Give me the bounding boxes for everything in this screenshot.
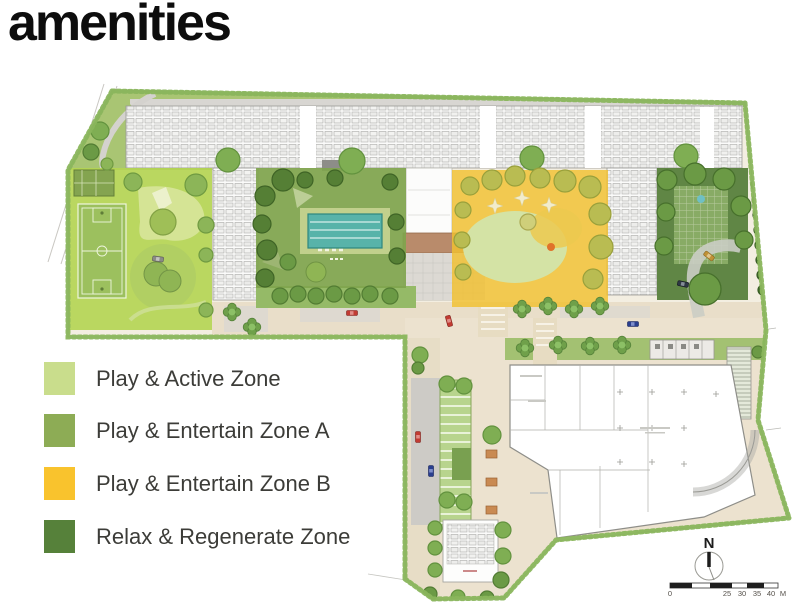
legend-label-entertain-b: Play & Entertain Zone B [96, 471, 331, 497]
legend-item-entertain-a: Play & Entertain Zone A [44, 414, 330, 447]
scale-label-35: 35 [753, 589, 761, 598]
basketball-court [78, 204, 126, 298]
legend-label-entertain-a: Play & Entertain Zone A [96, 418, 330, 444]
swimming-pool [308, 214, 382, 248]
compass-north-label: N [704, 535, 715, 552]
legend-swatch-play-active [44, 362, 75, 395]
scale-label-40: 40 [767, 589, 775, 598]
play-equipment [547, 243, 555, 251]
legend-label-play-active: Play & Active Zone [96, 366, 281, 392]
residential-buildings [126, 106, 742, 300]
amenities-slide: amenities [0, 0, 793, 607]
legend-swatch-entertain-b [44, 467, 75, 500]
legend-label-relax: Relax & Regenerate Zone [96, 524, 350, 550]
scale-label-m: M [780, 589, 786, 598]
legend-item-relax: Relax & Regenerate Zone [44, 520, 350, 553]
scale-label-25: 25 [723, 589, 731, 598]
legend: Play & Active Zone Play & Entertain Zone… [44, 362, 354, 562]
legend-item-entertain-b: Play & Entertain Zone B [44, 467, 331, 500]
legend-item-play-active: Play & Active Zone [44, 362, 281, 395]
scale-label-30: 30 [738, 589, 746, 598]
scale-label-0: 0 [668, 589, 672, 598]
pond [697, 195, 705, 203]
scale-bar: 0 25 30 35 40 M [668, 583, 786, 598]
legend-swatch-relax [44, 520, 75, 553]
compass-icon: N [695, 535, 723, 580]
legend-swatch-entertain-a [44, 414, 75, 447]
